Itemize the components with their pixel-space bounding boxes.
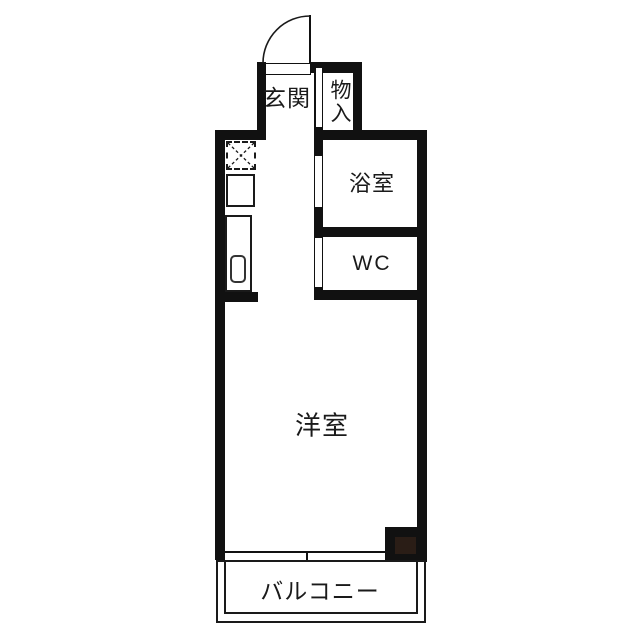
room-label-toilet: WC (353, 252, 392, 276)
room-label-genkan: 玄関 (263, 79, 311, 113)
room-label-main-room: 洋室 (295, 406, 349, 443)
entrance-door-arc (263, 16, 310, 63)
door-swing-and-marks (0, 0, 640, 640)
room-label-balcony: バルコニー (260, 572, 380, 606)
room-label-bathroom: 浴室 (349, 166, 395, 198)
refrigerator-x-mark (228, 143, 254, 168)
room-label-storage: 物入 (324, 79, 354, 125)
floor-plan: 玄関 物入 浴室 WC 洋室 バルコニー (0, 0, 640, 640)
